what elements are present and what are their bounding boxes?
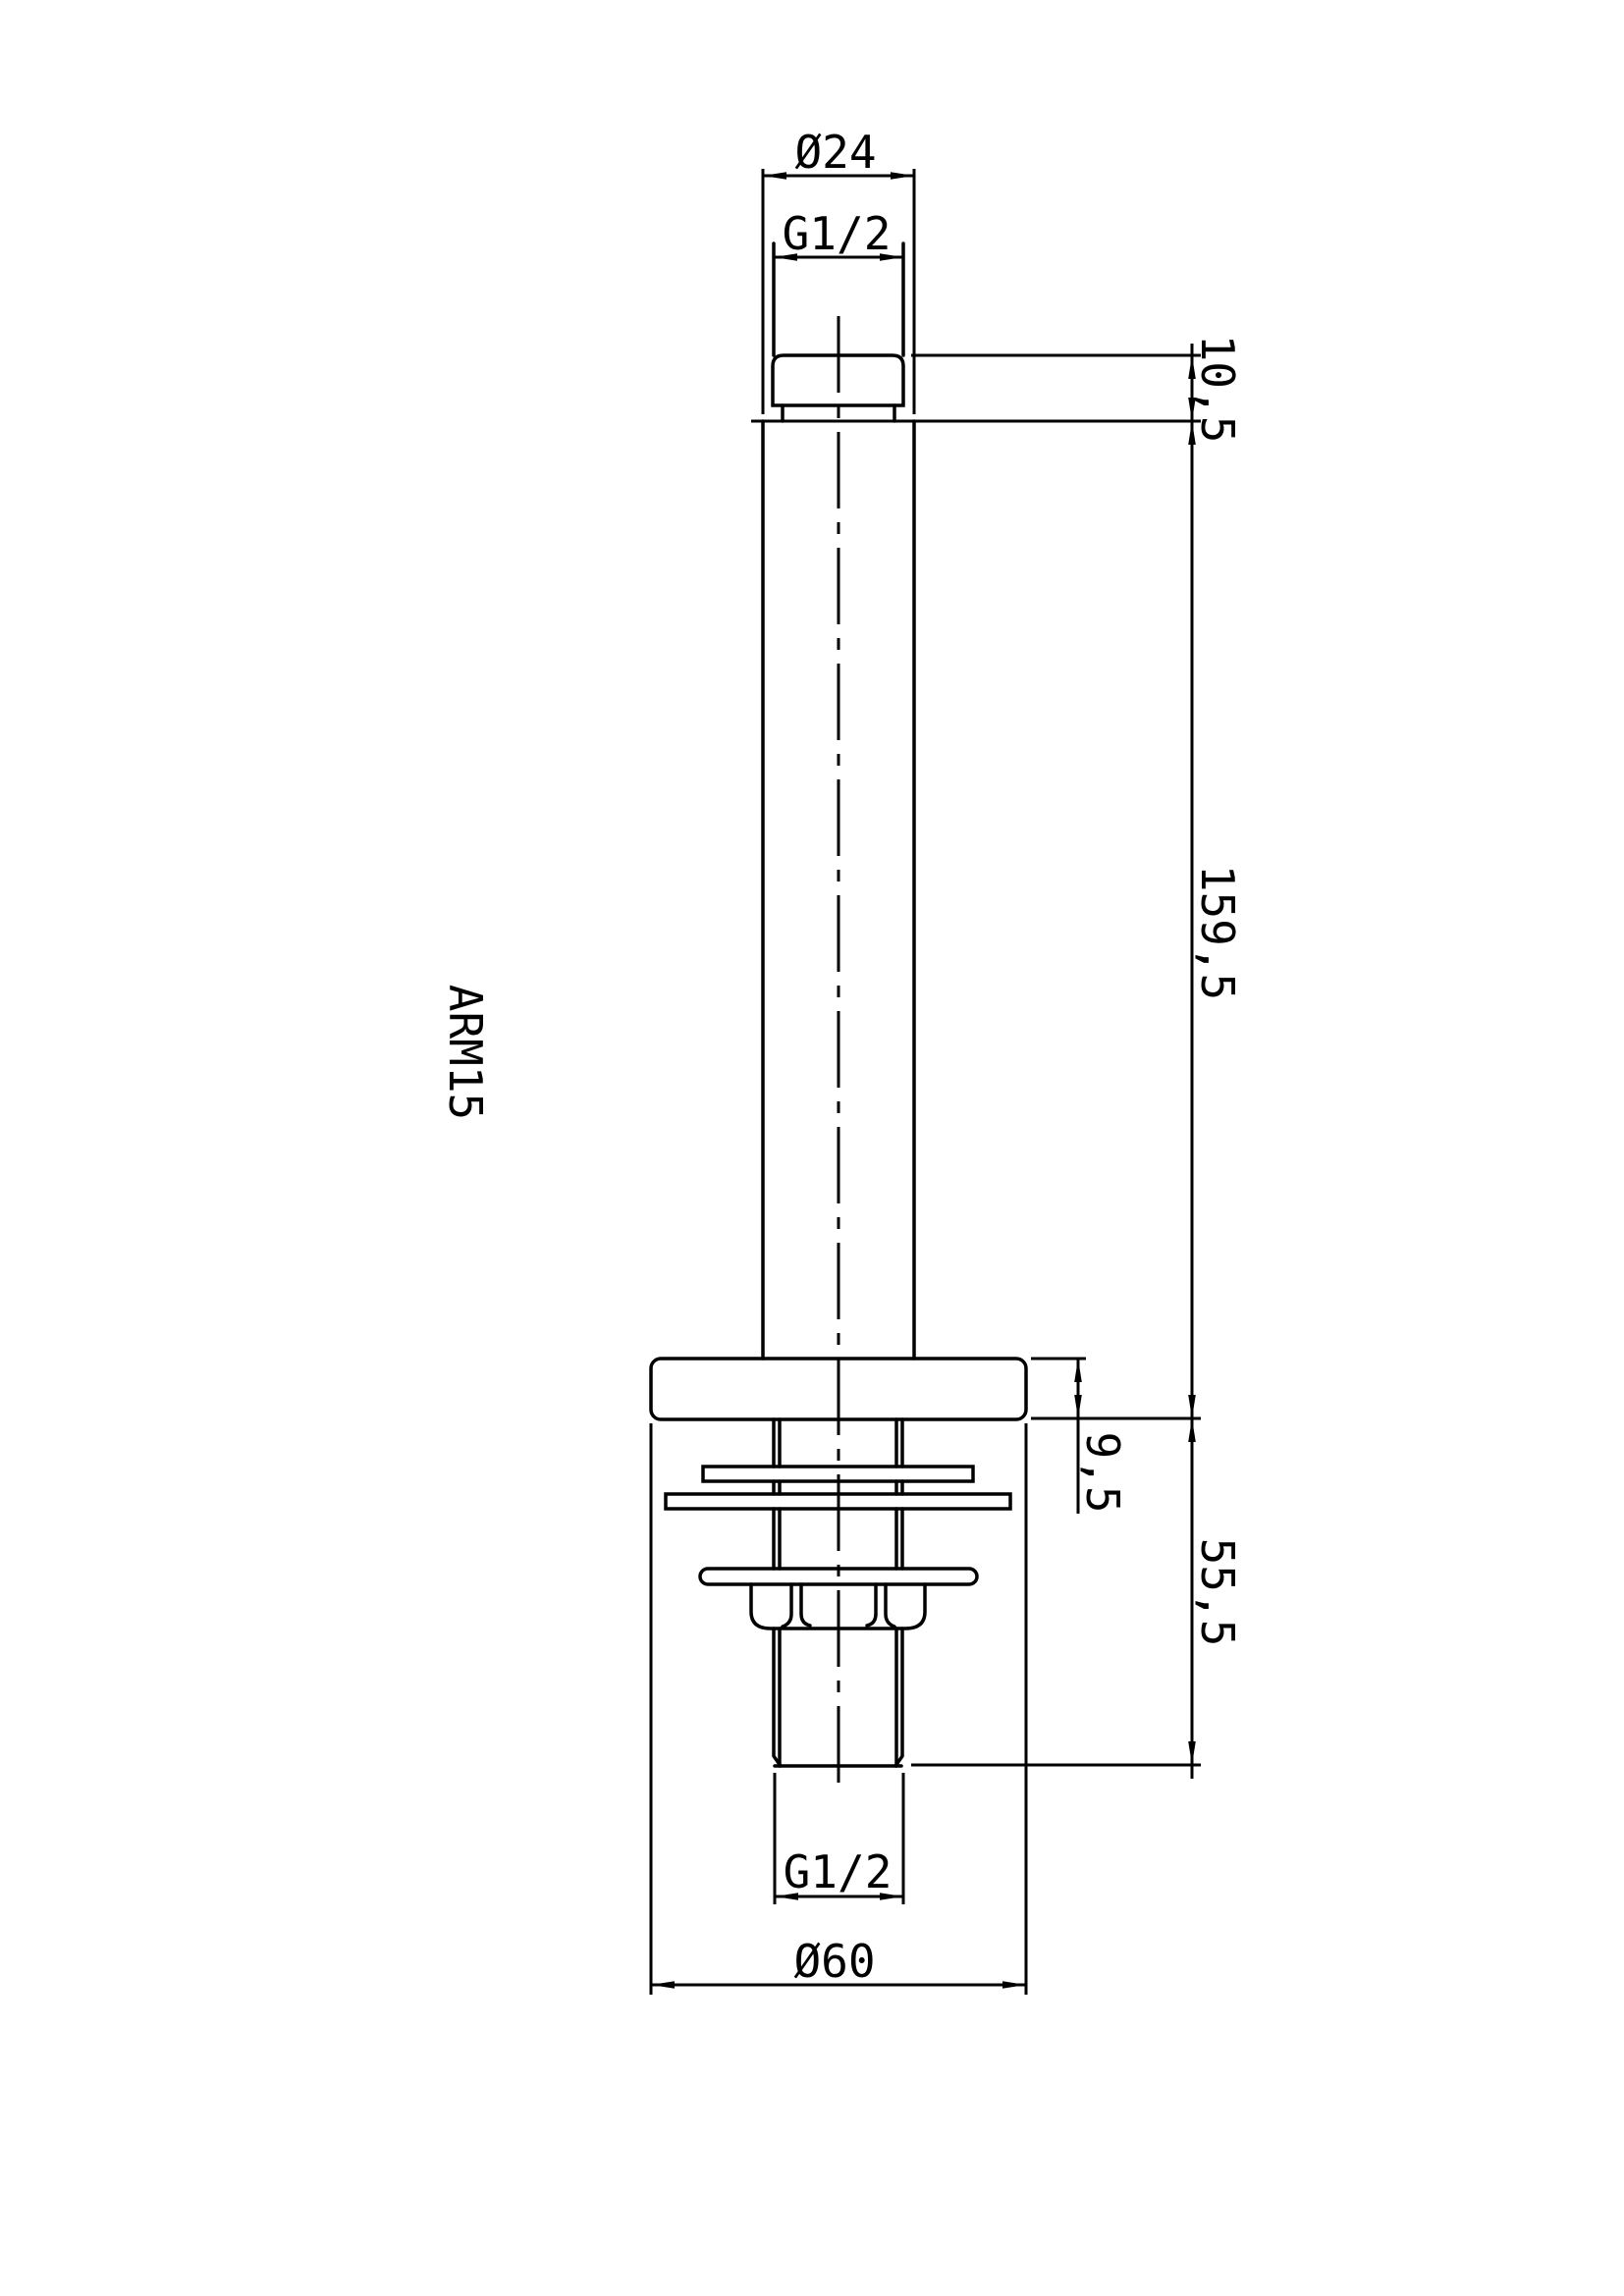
shower-arm-drawing: Ø24 G1/2 10,5 159,5 9,5 55,5 G1/2 Ø60 AR… [0, 0, 1624, 2296]
dim-text-top-diameter: Ø24 [794, 126, 876, 179]
dim-text-top-thread: G1/2 [783, 207, 892, 260]
cad-sheet: Ø24 G1/2 10,5 159,5 9,5 55,5 G1/2 Ø60 AR… [0, 0, 1624, 2296]
dim-text-below-ceiling-length: 55,5 [1191, 1538, 1244, 1647]
extension-lines [651, 169, 1201, 1995]
dim-text-top-stub-height: 10,5 [1191, 335, 1244, 444]
dim-text-bottom-thread: G1/2 [784, 1845, 893, 1898]
part-label: ARM15 [439, 985, 492, 1120]
dimension-lines [651, 176, 1192, 1985]
dim-text-flange-diameter: Ø60 [793, 1935, 875, 1988]
dim-text-arm-length: 159,5 [1191, 865, 1244, 1000]
dim-text-flange-thickness: 9,5 [1076, 1431, 1129, 1513]
